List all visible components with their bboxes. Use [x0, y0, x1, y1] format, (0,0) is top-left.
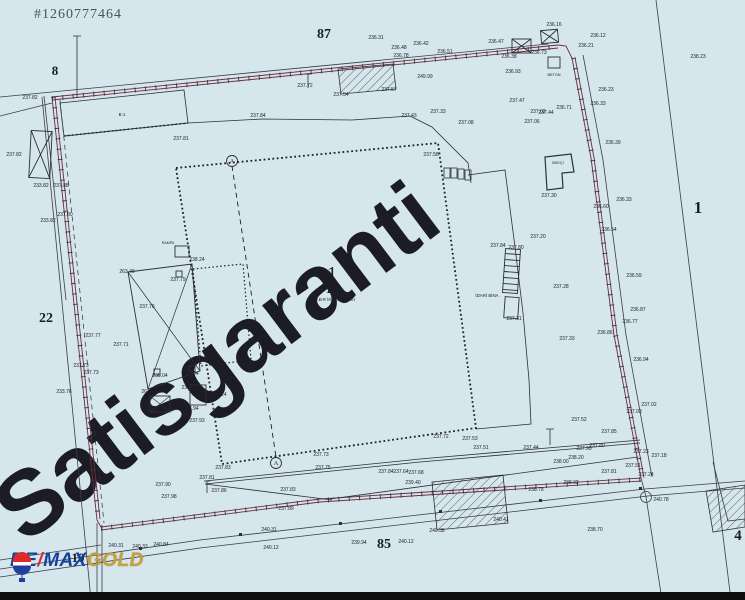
elevation-label: 236.48	[391, 45, 407, 51]
elevation-label: 237.85	[601, 429, 617, 435]
elevation-label: 236.23	[598, 87, 614, 93]
elevation-label: 237.80	[589, 443, 605, 449]
building-area-label: 141	[326, 284, 343, 296]
elevation-label: 237.31	[506, 316, 522, 322]
elevation-label: 237.72	[433, 434, 449, 440]
elevation-label: 237.83	[280, 487, 296, 493]
elevation-label: 237.88	[53, 183, 69, 189]
elevation-label: 237.71	[113, 342, 129, 348]
elevation-label: 240.78	[653, 497, 669, 503]
elevation-label: 237.51	[625, 463, 641, 469]
elevation-label: 237.44	[538, 110, 554, 116]
guard-hut	[545, 154, 574, 190]
remax-gold-logo: RE/MAXGOLD	[10, 550, 144, 572]
elevation-label: 237.68	[408, 470, 424, 476]
fence-ticks-north	[52, 47, 558, 99]
elevation-label: 237.30	[541, 193, 557, 199]
stair-rect-1	[444, 168, 450, 178]
elevation-label: 236.16	[546, 22, 562, 28]
elevation-label: 238.24	[189, 257, 205, 263]
elevation-label: 249.99	[417, 74, 433, 80]
elevation-label: 240.41	[493, 517, 509, 523]
guard-hut-label: BEKÇİ	[552, 160, 563, 165]
listing-id: #1260777464	[34, 7, 122, 23]
elevation-label: 237.82	[22, 95, 38, 101]
elevation-label: 240.84	[153, 542, 169, 548]
concrete-pad	[548, 57, 560, 68]
parcel-number: 8	[52, 63, 59, 78]
parcel-number: 1	[694, 198, 703, 217]
elevation-label: 237.82	[6, 152, 22, 158]
elevation-label: 240.38	[429, 528, 445, 534]
elevation-label: 237.77	[85, 333, 101, 339]
elevation-label: 237.76	[139, 304, 155, 310]
elevation-label: 237.20	[530, 234, 546, 240]
elevation-label: 236.12	[590, 33, 606, 39]
elevation-label: 237.80	[57, 212, 73, 218]
elevation-label: 237.08	[458, 120, 474, 126]
ramp-rect-1	[175, 246, 189, 257]
elevation-label: 236.51	[437, 49, 453, 55]
elevation-label: 237.73	[313, 452, 329, 458]
elevation-label: 238.04	[152, 373, 168, 379]
elevation-label: 237.79	[170, 277, 186, 283]
elevation-label: 237.23	[633, 449, 649, 455]
north-road-line	[0, 44, 548, 97]
elevation-label: 236.31	[368, 35, 384, 41]
transformer-box-2	[541, 29, 559, 43]
ramp-label: RAMPA	[162, 241, 175, 245]
elevation-label: 239.94	[351, 540, 367, 546]
elevation-label: 233.82	[33, 183, 49, 189]
elevation-label: 237.90	[155, 482, 171, 488]
elevation-label: 238.92	[563, 480, 579, 486]
elevation-label: 237.33	[430, 109, 446, 115]
elevation-label: 237.02	[641, 402, 657, 408]
elevation-label: 237.33	[559, 336, 575, 342]
elevation-label: 237.03	[626, 409, 642, 415]
elevation-label: 237.24	[638, 472, 654, 478]
elevation-label: 236.33	[590, 101, 606, 107]
elevation-label: 240.12	[398, 539, 414, 545]
elevation-label: 237.81	[173, 136, 189, 142]
elevation-label: 263.27	[141, 389, 157, 395]
building-name-label: FABRİKA BİNASI	[312, 296, 356, 302]
elevation-label: 237.53	[462, 436, 478, 442]
elevation-label: 238.70	[587, 527, 603, 533]
elevation-label: 237.80	[508, 245, 524, 251]
elevation-label: 237.44	[523, 445, 539, 451]
elevation-label: 236.21	[578, 43, 594, 49]
elevation-label: 239.40	[405, 480, 421, 486]
elevation-label: 238.78	[528, 487, 544, 493]
elevation-label: 236.59	[626, 273, 642, 279]
elevation-label: 236.86	[597, 330, 613, 336]
elevation-label: 236.77	[622, 319, 638, 325]
admin-building-label: İDARİ BİNA	[475, 293, 498, 298]
elevation-label: 237.94	[183, 406, 199, 412]
north-road-line-2	[0, 103, 52, 116]
site-plan-image: Satisgaranti	[0, 0, 745, 600]
elevation-label: 237.83	[215, 465, 231, 471]
gold-wordmark: GOLD	[87, 550, 144, 571]
elevation-label: 237.28	[553, 284, 569, 290]
elevation-label: 236.39	[605, 140, 621, 146]
hatched-areas	[338, 64, 745, 532]
elevation-label: 233.76	[56, 389, 72, 395]
elevation-label: 237.81	[199, 475, 215, 481]
elevation-label: 236.33	[616, 197, 632, 203]
elevation-label: 237.84	[490, 243, 506, 249]
elevation-label: 237.51	[473, 445, 489, 451]
parcel-number: 85	[377, 537, 391, 552]
elevation-label: 238.04	[183, 371, 199, 377]
elevation-label: 237.64	[393, 469, 409, 475]
elevation-label: 237.43	[401, 113, 417, 119]
elevation-label: 237.86	[211, 488, 227, 494]
elevation-label: 240.31	[261, 527, 277, 533]
survey-point-letter: A	[230, 158, 235, 165]
parcel-number: 4	[734, 528, 742, 544]
elevation-label: 237.58	[423, 152, 439, 158]
elevation-label: 237.18	[651, 453, 667, 459]
elevation-label: 236.47	[488, 39, 504, 45]
elevation-label: 237.72	[297, 83, 313, 89]
elevation-label: 236.54	[601, 227, 617, 233]
elevation-label: 237.06	[524, 119, 540, 125]
elevation-label: 237.89	[278, 506, 294, 512]
parcel-number: 22	[39, 311, 53, 326]
survey-point-letter: A	[274, 460, 279, 467]
elevation-label: 236.73	[531, 50, 547, 56]
stair-rect-3	[458, 169, 464, 179]
elevation-label: 237.98	[161, 494, 177, 500]
elevation-label: 237.57	[381, 87, 397, 93]
elevation-label: 237.54	[333, 92, 349, 98]
elevation-label: 240.31	[108, 543, 124, 549]
elevation-label: 236.60	[593, 204, 609, 210]
parcel-number: 87	[317, 27, 331, 42]
elevation-label: 237.84	[250, 113, 266, 119]
elevation-label: 236.87	[630, 307, 646, 313]
elevation-label: 237.84	[378, 469, 394, 475]
elevation-label: 236.38	[501, 54, 517, 60]
elevation-label: 237.93	[189, 418, 205, 424]
elevation-label: 263.49	[119, 269, 135, 275]
elevation-label: 237.73	[83, 370, 99, 376]
elevation-label: 238.20	[568, 455, 584, 461]
elevation-label: 236.71	[556, 105, 572, 111]
elevation-label: 238.11	[182, 385, 197, 391]
hatch-southeast-area	[706, 485, 745, 532]
elevation-label: 238.00	[553, 459, 569, 465]
remax-balloon-icon	[10, 550, 34, 586]
elevation-label: 236.78	[393, 53, 409, 59]
elevation-label: 233.82	[40, 218, 56, 224]
concrete-label: BETON	[547, 73, 560, 77]
elevation-label: 237.81	[601, 469, 617, 475]
elevation-label: 237.75	[315, 465, 331, 471]
elevation-label: 236.42	[413, 41, 429, 47]
survey-plan-drawing: Satisgaranti	[0, 0, 745, 600]
elevation-label: 236.94	[633, 357, 649, 363]
neighbor-structure-x	[29, 131, 52, 179]
wing-label: B.1	[119, 112, 126, 117]
inner-north-fence	[64, 116, 471, 183]
elevation-label: 237.73	[73, 363, 89, 369]
elevation-label: 238.24	[211, 392, 227, 398]
elevation-label: 238.23	[690, 54, 706, 60]
building-number: 1	[327, 263, 337, 285]
elevation-label: 236.93	[505, 69, 521, 75]
admin-strip-outline	[468, 170, 531, 429]
stair-rect-2	[451, 168, 457, 178]
fence-ticks-south	[101, 480, 641, 529]
bottom-black-bar	[0, 592, 745, 600]
elevation-label: 240.12	[263, 545, 279, 551]
elevation-label: 237.52	[571, 417, 587, 423]
elevation-label: 237.47	[509, 98, 525, 104]
